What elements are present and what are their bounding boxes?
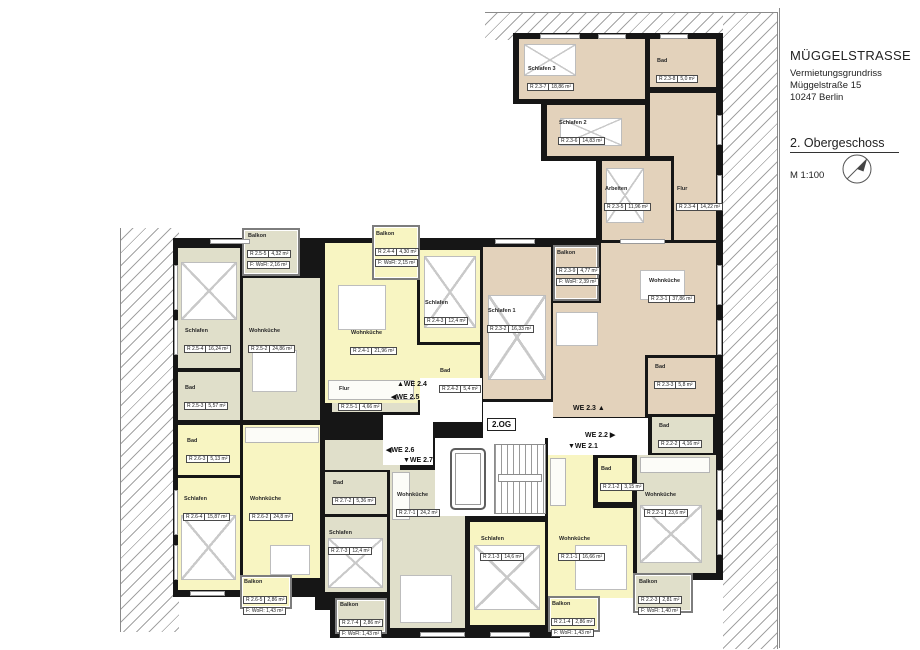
unit-tag-we27: ▼WE 2.7 <box>403 457 433 464</box>
room-label: WohnkücheR 2.6-224,8 m² <box>249 496 293 523</box>
plan-frame-line <box>779 8 780 648</box>
room-label: WohnkücheR 2.3-137,86 m² <box>648 278 695 305</box>
room-label: BadR 2.7-25,36 m² <box>332 480 376 507</box>
room-label: SchlafenR 2.6-415,87 m² <box>183 496 230 523</box>
window <box>174 545 178 580</box>
room-label: BadR 2.4-25,4 m² <box>439 368 481 395</box>
floor-title: 2. Obergeschoss <box>790 136 899 153</box>
window <box>190 591 225 596</box>
window <box>620 239 665 244</box>
room-label: BalkonR 2.7-42,86 m²F: WoFl: 1,43 m² <box>339 602 383 638</box>
room-label: SchlafenR 2.7-312,4 m² <box>328 530 372 557</box>
dining-table <box>252 350 297 392</box>
room-label: SchlafenR 2.1-314,6 m² <box>480 536 524 563</box>
window <box>540 34 580 39</box>
bed <box>181 515 236 580</box>
room-label: Schlafen 3R 2.3-718,86 m² <box>527 66 574 93</box>
room-label: BalkonR 2.5-54,32 m²F: WoFl: 2,16 m² <box>247 233 291 269</box>
unit-tag-we26: ◀WE 2.6 <box>386 446 414 454</box>
room-label: BadR 2.6-35,13 m² <box>186 438 230 465</box>
window <box>717 320 722 355</box>
room-flur-we23 <box>650 93 716 156</box>
address-street: Müggelstraße 15 <box>790 80 861 91</box>
room-label: SchlafenR 2.4-312,4 m² <box>424 300 468 327</box>
room-label: WohnkücheR 2.7-124,2 m² <box>396 492 440 519</box>
room-label: BalkonR 2.3-94,77 m²F: WoFl: 2,39 m² <box>556 250 600 286</box>
stair-handrail <box>498 474 542 482</box>
window <box>420 632 465 637</box>
room-label: BalkonR 2.4-44,30 m²F: WoFl: 2,15 m² <box>375 231 419 267</box>
room-label: WohnkücheR 2.5-224,86 m² <box>248 328 295 355</box>
dining-table <box>400 575 452 623</box>
scale-label: M 1:100 <box>790 170 824 181</box>
kitchen-counter <box>245 427 319 443</box>
kitchen-counter <box>640 457 710 473</box>
dining-table <box>556 312 598 346</box>
north-arrow-icon <box>840 152 874 186</box>
window <box>660 34 688 39</box>
room-label: BalkonR 2.1-42,86 m²F: WoFl: 1,43 m² <box>551 601 595 637</box>
window <box>210 239 250 244</box>
dining-table <box>338 285 386 330</box>
room-label: FlurR 2.3-414,22 m² <box>676 186 723 213</box>
room-label: BalkonR 2.2-32,81 m²F: WoFl: 1,40 m² <box>638 579 682 615</box>
room-label: BadR 2.3-35,8 m² <box>654 364 696 391</box>
kitchen-counter <box>550 458 566 506</box>
window <box>495 239 535 244</box>
room-label: SchlafenR 2.5-416,24 m² <box>184 328 231 355</box>
unit-tag-we21: ▼WE 2.1 <box>568 443 598 450</box>
site-hatch-left <box>120 228 179 632</box>
unit-tag-we24: ▲WE 2.4 <box>397 381 427 388</box>
site-hatch-right <box>723 12 778 649</box>
room-label: Schlafen 2R 2.3-614,83 m² <box>558 120 605 147</box>
floor-tag: 2.OG <box>487 418 516 431</box>
window <box>717 470 722 510</box>
room-label: WohnkücheR 2.2-123,6 m² <box>644 492 688 519</box>
room-label: Schlafen 1R 2.3-216,33 m² <box>487 308 534 335</box>
room-label: BadR 2.3-85,0 m² <box>656 58 698 85</box>
room-label: WohnkücheR 2.1-116,66 m² <box>558 536 605 563</box>
room-label: BadR 2.5-35,57 m² <box>184 385 228 412</box>
room-label: BadR 2.1-23,15 m² <box>600 466 644 493</box>
bed <box>181 262 237 320</box>
room-label: BadR 2.2-24,16 m² <box>658 423 702 450</box>
window <box>717 520 722 555</box>
window <box>174 320 178 355</box>
window <box>598 34 626 39</box>
window <box>717 265 722 305</box>
unit-tag-we25: ◀WE 2.5 <box>391 393 419 401</box>
window <box>174 265 178 310</box>
room-label: BalkonR 2.6-52,86 m²F: WoFl: 1,43 m² <box>243 579 287 615</box>
window <box>490 632 530 637</box>
room-label: ArbeitenR 2.3-511,96 m² <box>604 186 651 213</box>
unit-tag-we23: WE 2.3 ▲ <box>573 405 605 412</box>
unit-tag-we22: WE 2.2 ▶ <box>585 431 615 439</box>
dining-table <box>270 545 310 575</box>
plan-type: Vermietungsgrundriss <box>790 68 882 79</box>
address-city: 10247 Berlin <box>790 92 843 103</box>
room-label: FlurR 2.5-14,66 m² <box>338 386 382 413</box>
window <box>717 115 722 145</box>
window <box>174 490 178 535</box>
floorplan-page: Schlafen 3R 2.3-718,86 m² BadR 2.3-85,0 … <box>0 0 920 650</box>
project-title: MÜGGELSTRASSE <box>790 48 911 63</box>
elevator <box>450 448 486 510</box>
room-label: WohnkücheR 2.4-121,96 m² <box>350 330 397 357</box>
